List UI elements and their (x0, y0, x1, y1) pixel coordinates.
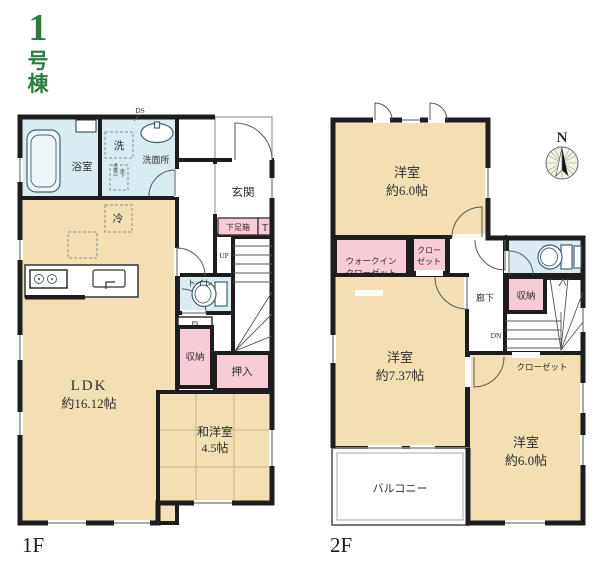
washer-label: 洗 (114, 140, 125, 152)
washroom-label: 洗面所 (142, 154, 169, 165)
kitchen-counter (25, 265, 138, 300)
ps-label: PS (191, 320, 199, 327)
sink-icon (93, 270, 125, 289)
compass: N (546, 130, 578, 179)
tatami-name: 和洋室 (197, 424, 233, 439)
oshiire-label: 押入 (232, 365, 253, 378)
bath-fixture (76, 120, 96, 132)
tatami-size: 4.5帖 (201, 440, 228, 455)
wic-label-1: ウォークイン (345, 256, 396, 266)
building-number: 1 (16, 6, 60, 50)
building-kanji-1: 号 (16, 50, 60, 73)
building-number-label: 1 号 棟 (16, 6, 60, 96)
shoebox-label: 下足箱 (226, 222, 250, 232)
counter-edge (25, 295, 85, 300)
storage-label-1f: 収納 (185, 351, 204, 363)
inspection-label-2: 点検口 (113, 163, 119, 178)
up-label: UP (219, 251, 229, 260)
ldk-size: 約16.12帖 (61, 396, 116, 411)
bathtub-icon (27, 130, 60, 192)
entrance-label: 玄関 (232, 185, 255, 199)
hallway-label: 廊下 (476, 292, 494, 303)
floor2-label: 2F (330, 533, 352, 557)
bedroom-north-size: 約6.0帖 (386, 183, 428, 198)
shoebox-t-label: T (262, 223, 268, 234)
bedroom-se-name: 洋室 (513, 435, 539, 450)
floor2-plan: N 洋室 約6.0帖 ウォークイン クローゼット クロー ゼット 廊下 収納 D… (328, 100, 596, 562)
floorplan-canvas: 1 号 棟 (0, 0, 600, 564)
bedroom-se-size: 約6.0帖 (505, 453, 547, 468)
bath-label: 浴室 (72, 160, 93, 173)
room-ldk (20, 198, 177, 523)
closet-small-label-1: クロー (417, 246, 441, 255)
storage-label-2f: 収納 (516, 290, 535, 302)
ds-label: DS (135, 106, 145, 115)
closet-small-label-2: ゼット (417, 256, 441, 266)
inspection-label-1: 床下 (120, 167, 126, 179)
ldk-name: LDK (71, 378, 108, 394)
bedroom-north-name: 洋室 (394, 165, 420, 180)
stairs-1f (233, 237, 272, 353)
fridge-label: 冷 (113, 212, 124, 225)
bedroom-west-name: 洋室 (387, 350, 413, 365)
hall-1f (177, 160, 215, 276)
floor1-plan: DS 浴室 洗 洗面所 床下 点検口 玄関 下足箱 T UP トイレ PS 収納… (18, 100, 286, 562)
closet-small (412, 237, 447, 273)
dn-label: DN (491, 331, 502, 340)
bedroom-west-size: 約7.37帖 (376, 368, 425, 383)
compass-n-label: N (557, 130, 568, 146)
stove-icon (30, 270, 67, 288)
closet-bottom-label: クローゼット (516, 362, 567, 372)
toilet-label: トイレ (187, 278, 213, 288)
building-kanji-2: 棟 (16, 73, 60, 96)
floor1-label: 1F (22, 533, 44, 557)
balcony-label: バルコニー (373, 482, 428, 495)
wic-label-2: クローゼット (345, 268, 396, 278)
